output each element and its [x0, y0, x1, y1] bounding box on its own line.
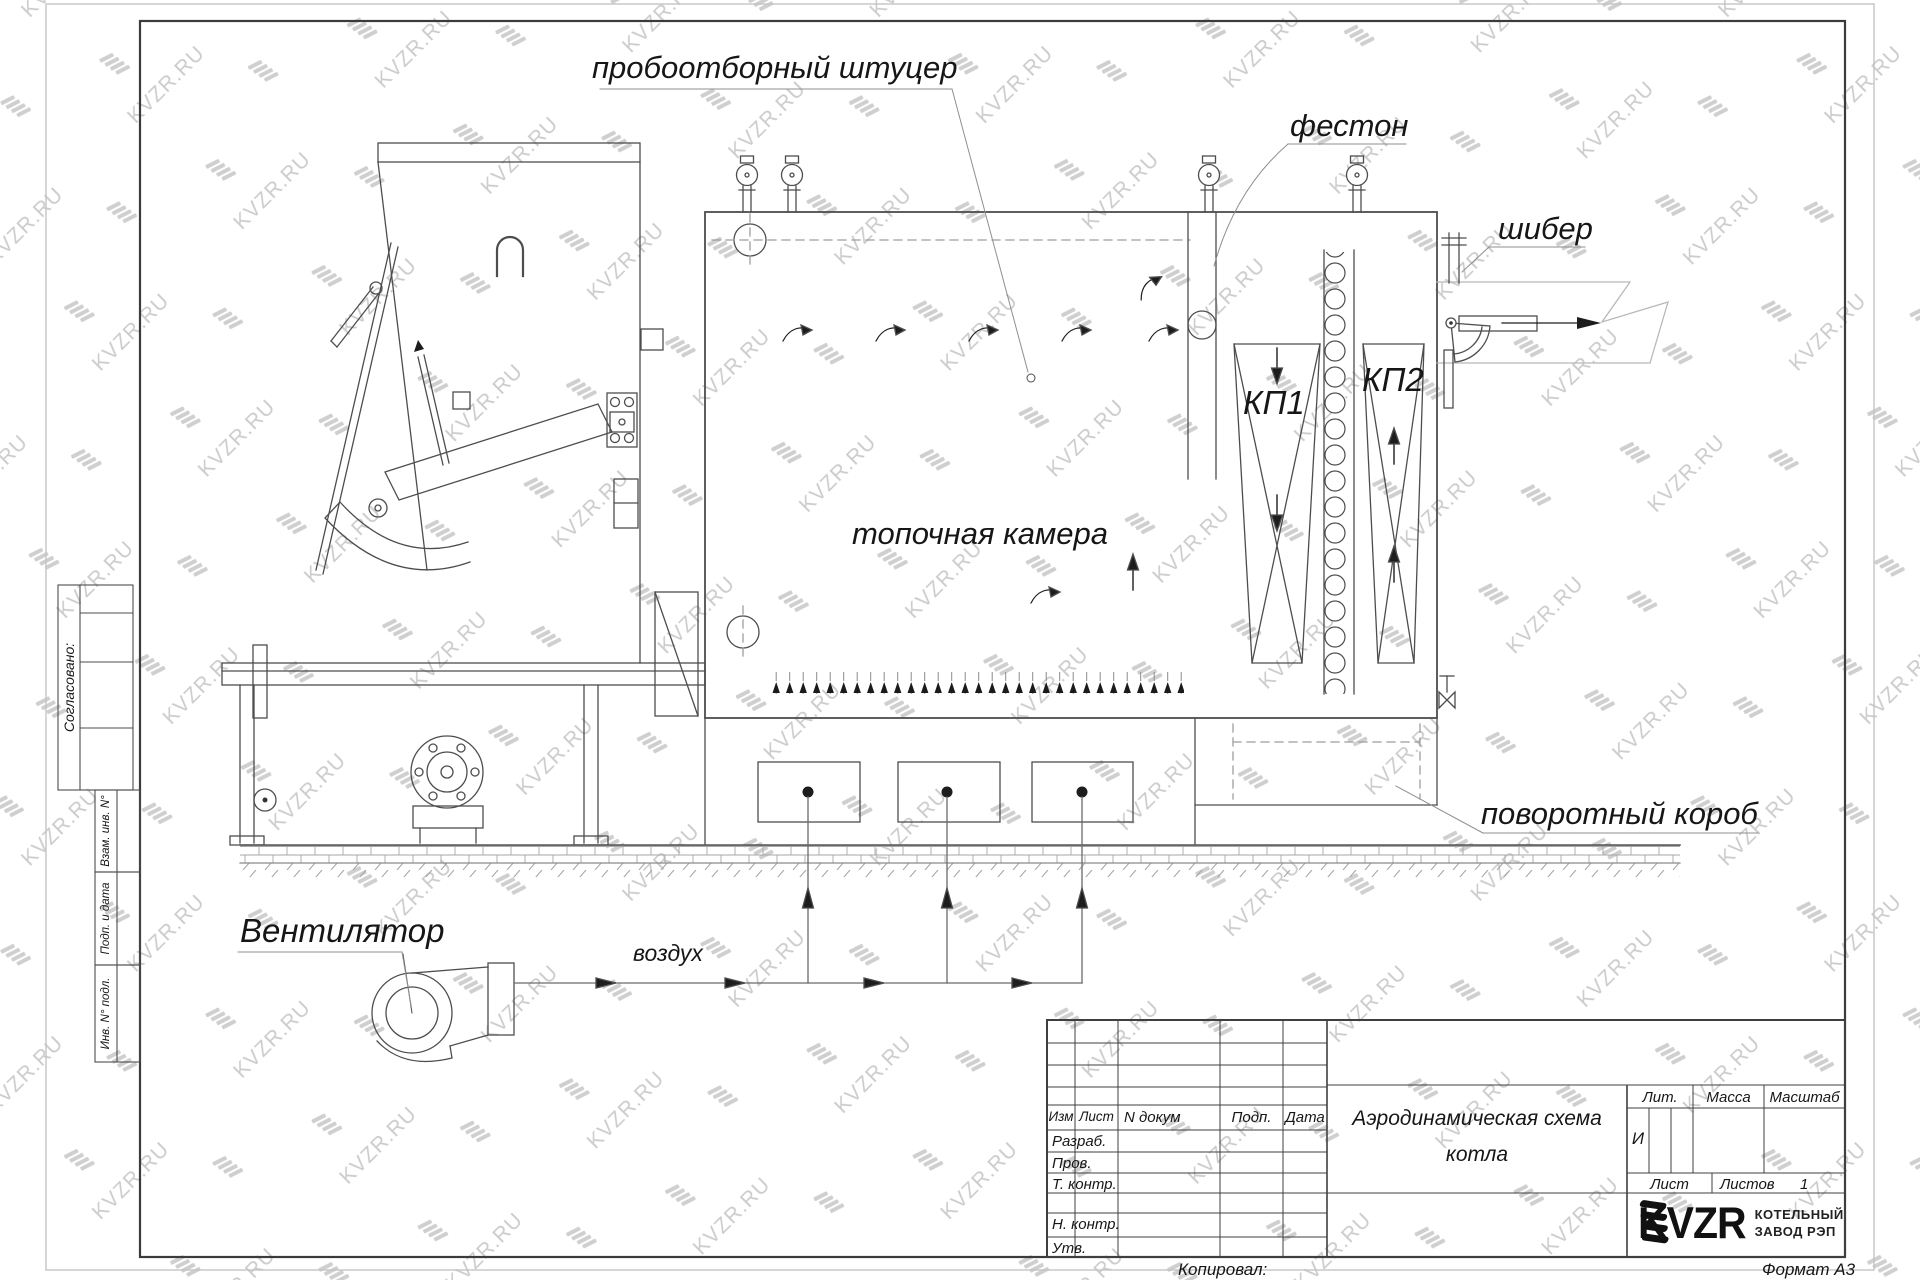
air-boxes	[758, 762, 1133, 822]
safety-valves	[737, 156, 1368, 212]
titleblock-col-izm: Изм	[1047, 1110, 1075, 1124]
margin-label-sign-date: Подп. и дата	[95, 872, 117, 965]
drain-valve	[1439, 676, 1455, 708]
margin-label-agreed: Согласовано:	[58, 585, 80, 790]
rear-screen-pipes	[1188, 212, 1216, 479]
company-line2: ЗАВОД РЭП	[1755, 1224, 1844, 1240]
label-turning-duct: поворотный короб	[1481, 798, 1758, 829]
label-kp1: КП1	[1243, 386, 1305, 419]
label-sampling-fitting: пробоотборный штуцер	[592, 52, 958, 83]
margin-label-zam-inv: Взам. инв. N°	[95, 790, 117, 872]
titleblock-sheets-value: 1	[1800, 1177, 1808, 1192]
air-duct	[514, 797, 1088, 988]
titleblock-col-ndoc: N докум	[1124, 1110, 1181, 1125]
company-line1: КОТЕЛЬНЫЙ	[1755, 1207, 1844, 1223]
document-title-line2: котла	[1327, 1144, 1627, 1165]
gas-flow-arrows	[783, 272, 1400, 603]
fuel-hopper	[378, 143, 640, 663]
titleblock-lit-value: И	[1627, 1130, 1649, 1147]
boiler-aerodynamic-scheme	[0, 0, 1920, 1280]
label-air: воздух	[633, 942, 703, 965]
festoon-tubes	[1324, 250, 1354, 694]
support-frame	[222, 329, 705, 845]
titleblock-col-data: Дата	[1283, 1110, 1327, 1125]
titleblock-col-podp: Подп.	[1220, 1110, 1283, 1125]
titleblock-row-prov: Пров.	[1052, 1156, 1092, 1171]
centerlines	[712, 214, 1420, 799]
format-label: Формат А3	[1762, 1261, 1855, 1278]
label-kp2: КП2	[1362, 363, 1424, 396]
titleblock-scale-label: Масштаб	[1764, 1090, 1845, 1105]
brand-text: KVZR	[1638, 1198, 1746, 1249]
grate-air-arrows	[772, 672, 1184, 694]
damper	[1442, 233, 1537, 408]
grate-drive	[254, 736, 483, 843]
label-festoon: фестон	[1290, 110, 1408, 141]
label-furnace: топочная камера	[852, 518, 1108, 549]
titleblock-row-nkontr: Н. контр.	[1052, 1217, 1120, 1232]
titleblock-sheets-label: Листов	[1720, 1177, 1775, 1192]
titleblock-row-tkontr: Т. контр.	[1052, 1177, 1117, 1192]
fan	[372, 954, 514, 1062]
ground	[240, 845, 1680, 877]
copied-label: Копировал:	[1178, 1261, 1267, 1278]
label-fan: Вентилятор	[240, 914, 444, 947]
titleblock-mass-label: Масса	[1693, 1090, 1764, 1105]
margin-label-inv-orig: Инв. N° подл.	[95, 965, 117, 1062]
sheet-frame	[46, 4, 1874, 1270]
company-logo: KVZR КОТЕЛЬНЫЙ ЗАВОД РЭП	[1638, 1200, 1844, 1247]
titleblock-sheet-label: Лист	[1627, 1177, 1712, 1192]
stoker-mechanism	[316, 243, 637, 574]
titleblock-row-razrab: Разраб.	[1052, 1134, 1106, 1149]
document-title-line1: Аэродинамическая схема	[1327, 1108, 1627, 1129]
drawing-sheet: KVZR.RU	[0, 0, 1920, 1280]
label-damper: шибер	[1498, 213, 1593, 244]
titleblock-lit-label: Лит.	[1627, 1090, 1693, 1105]
titleblock-col-list: Лист	[1075, 1110, 1118, 1124]
titleblock-row-utv: Утв.	[1052, 1241, 1086, 1256]
